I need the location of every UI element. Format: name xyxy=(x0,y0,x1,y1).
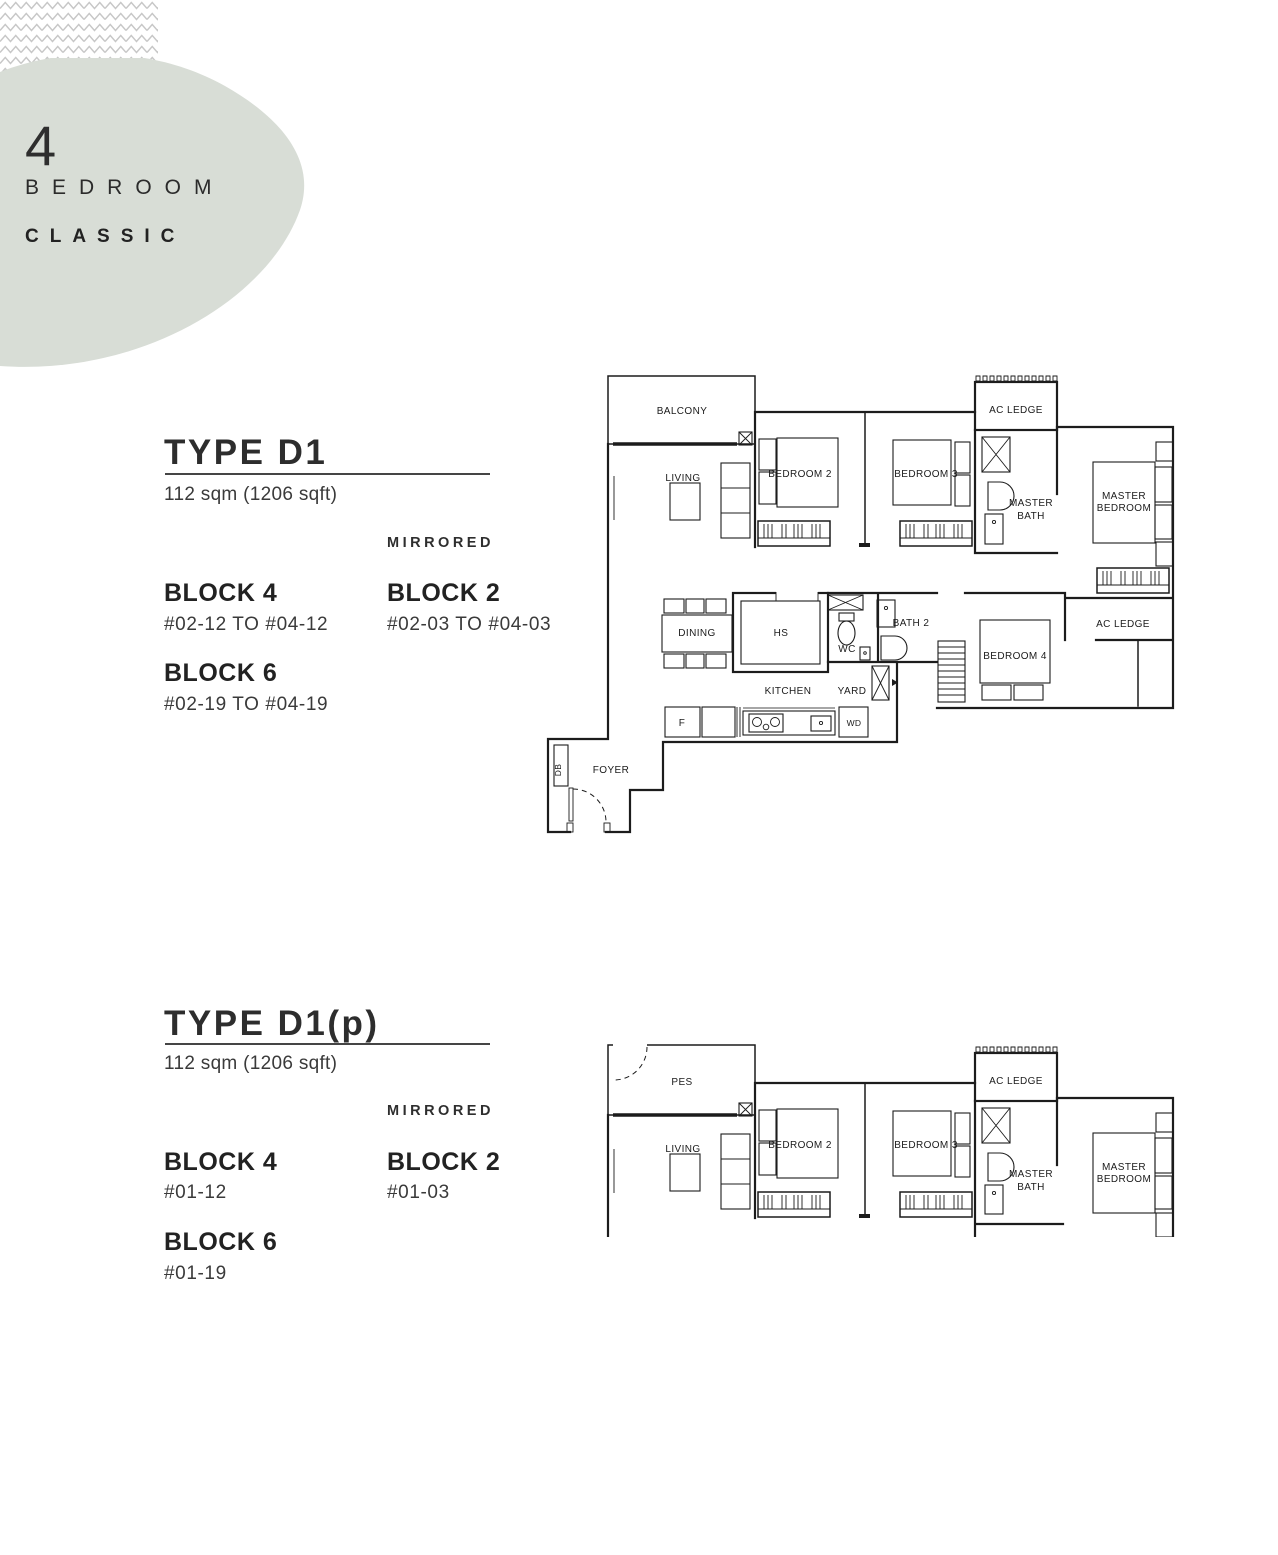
section2-area: 112 sqm (1206 sqft) xyxy=(164,1053,337,1075)
label-living: LIVING xyxy=(665,473,700,484)
badge-line1: BEDROOM xyxy=(25,176,225,200)
label-ac-ledge-top: AC LEDGE xyxy=(989,405,1043,416)
label-master-bath-1: MASTER xyxy=(1009,498,1053,509)
label-master-bedroom-2: BEDROOM xyxy=(1097,503,1151,514)
label-ac-ledge-bottom: AC LEDGE xyxy=(1096,619,1150,630)
bedroom3-furniture xyxy=(893,1111,972,1217)
kitchen-fixtures xyxy=(665,666,898,737)
leaf-blob xyxy=(0,58,320,373)
brochure-page: 4 BEDROOM CLASSIC TYPE D1 112 sqm (1206 … xyxy=(0,0,1278,1555)
label-ac-ledge: AC LEDGE xyxy=(989,1076,1043,1087)
label-bath2: BATH 2 xyxy=(893,618,930,629)
section1-block6-units: #02-19 TO #04-19 xyxy=(164,694,328,716)
section1-block2-units: #02-03 TO #04-03 xyxy=(387,614,551,636)
badge-line2: CLASSIC xyxy=(25,226,185,248)
label-pes: PES xyxy=(671,1077,692,1088)
section1-block4-units: #02-12 TO #04-12 xyxy=(164,614,328,636)
section2-mirrored-label: MIRRORED xyxy=(387,1103,494,1119)
master-bath-fixtures xyxy=(982,1108,1014,1214)
label-master-bedroom-1: MASTER xyxy=(1102,491,1146,502)
room-labels: BALCONY LIVING BEDROOM 2 BEDROOM 3 AC LE… xyxy=(553,405,1151,776)
label-fridge: F xyxy=(679,718,686,729)
label-bedroom3: BEDROOM 3 xyxy=(894,1140,958,1151)
floorplan-type-d1p: PES LIVING BEDROOM 2 BEDROOM 3 AC LEDGE … xyxy=(545,1037,1185,1237)
section2-block6-units: #01-19 xyxy=(164,1263,227,1285)
walls xyxy=(608,1047,1173,1237)
bedroom2-furniture xyxy=(758,438,838,546)
section2-block2-units: #01-03 xyxy=(387,1182,450,1204)
label-hs: HS xyxy=(774,628,789,639)
label-yard: YARD xyxy=(838,686,867,697)
label-bedroom3: BEDROOM 3 xyxy=(894,469,958,480)
label-living: LIVING xyxy=(665,1144,700,1155)
label-master-bath-1: MASTER xyxy=(1009,1169,1053,1180)
section2-block4-units: #01-12 xyxy=(164,1182,227,1204)
label-wc: WC xyxy=(838,644,855,655)
label-dining: DINING xyxy=(678,628,715,639)
section2-block6-name: BLOCK 6 xyxy=(164,1230,277,1255)
label-kitchen: KITCHEN xyxy=(765,686,812,697)
badge-number: 4 xyxy=(25,118,60,174)
section1-block4-name: BLOCK 4 xyxy=(164,581,277,606)
label-foyer: FOYER xyxy=(593,765,629,776)
master-bath-fixtures xyxy=(982,437,1014,544)
foyer-fixtures xyxy=(554,745,610,832)
label-wd: WD xyxy=(847,718,862,728)
label-bedroom4: BEDROOM 4 xyxy=(983,651,1047,662)
section1-area: 112 sqm (1206 sqft) xyxy=(164,484,337,506)
section1-underline xyxy=(165,473,490,475)
bedroom3-furniture xyxy=(893,440,972,546)
label-master-bedroom-1: MASTER xyxy=(1102,1162,1146,1173)
section1-title: TYPE D1 xyxy=(164,435,327,470)
bedroom2-furniture xyxy=(758,1109,838,1217)
section2-block4-name: BLOCK 4 xyxy=(164,1150,277,1175)
section2-underline xyxy=(165,1043,490,1045)
section2-title: TYPE D1(p) xyxy=(164,1006,380,1041)
section1-block6-name: BLOCK 6 xyxy=(164,661,277,686)
bath2-fixtures xyxy=(877,600,907,660)
label-master-bedroom-2: BEDROOM xyxy=(1097,1174,1151,1185)
label-balcony: BALCONY xyxy=(657,406,708,417)
label-master-bath-2: BATH xyxy=(1017,1182,1045,1193)
master-bedroom-furniture xyxy=(1093,442,1173,593)
floorplan-type-d1: BALCONY LIVING BEDROOM 2 BEDROOM 3 AC LE… xyxy=(545,370,1185,850)
section1-mirrored-label: MIRRORED xyxy=(387,535,494,551)
label-db: DB xyxy=(553,764,563,776)
section1-block2-name: BLOCK 2 xyxy=(387,581,500,606)
label-master-bath-2: BATH xyxy=(1017,511,1045,522)
label-bedroom2: BEDROOM 2 xyxy=(768,469,832,480)
section2-block2-name: BLOCK 2 xyxy=(387,1150,500,1175)
label-bedroom2: BEDROOM 2 xyxy=(768,1140,832,1151)
